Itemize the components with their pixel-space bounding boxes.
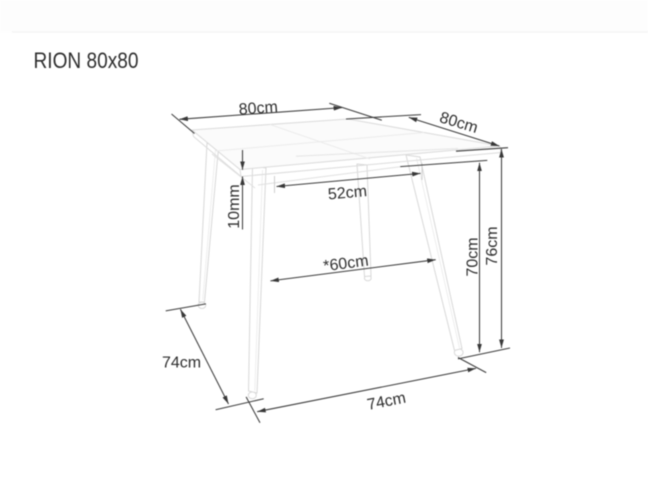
- svg-text:74cm: 74cm: [162, 354, 201, 371]
- svg-text:70cm: 70cm: [464, 237, 481, 276]
- svg-text:52cm: 52cm: [327, 183, 367, 203]
- svg-text:80cm: 80cm: [238, 99, 278, 119]
- svg-text:76cm: 76cm: [484, 226, 501, 265]
- svg-text:RION 80x80: RION 80x80: [34, 48, 139, 73]
- svg-text:74cm: 74cm: [366, 390, 408, 414]
- svg-text:*60cm: *60cm: [322, 253, 369, 276]
- svg-text:10mm: 10mm: [226, 184, 243, 228]
